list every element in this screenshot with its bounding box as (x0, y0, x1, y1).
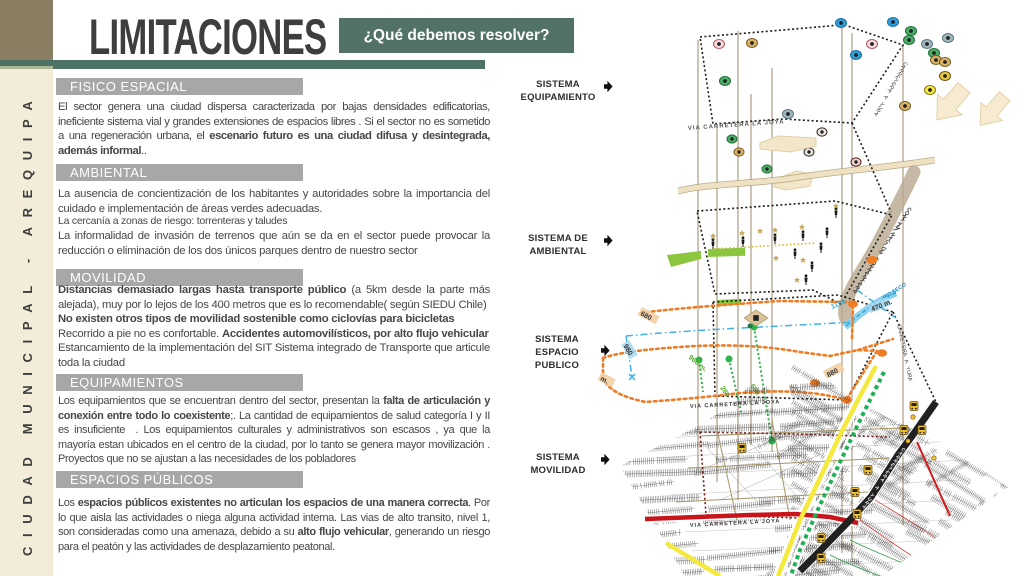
svg-text:VIA CARRETERA LA JOYA: VIA CARRETERA LA JOYA (690, 399, 781, 410)
svg-text:A: A (886, 88, 893, 94)
svg-text:A: A (906, 377, 913, 383)
svg-text:A: A (872, 112, 879, 118)
svg-text:A: A (882, 95, 889, 101)
svg-text:A: A (902, 359, 909, 365)
svg-text:A: A (901, 352, 908, 358)
svg-text:VIA CARRETERA LA JOYA: VIA CARRETERA LA JOYA (688, 119, 785, 132)
svg-text:N: N (877, 250, 884, 255)
svg-text:A: A (851, 289, 858, 294)
svg-text:260: 260 (718, 385, 730, 399)
